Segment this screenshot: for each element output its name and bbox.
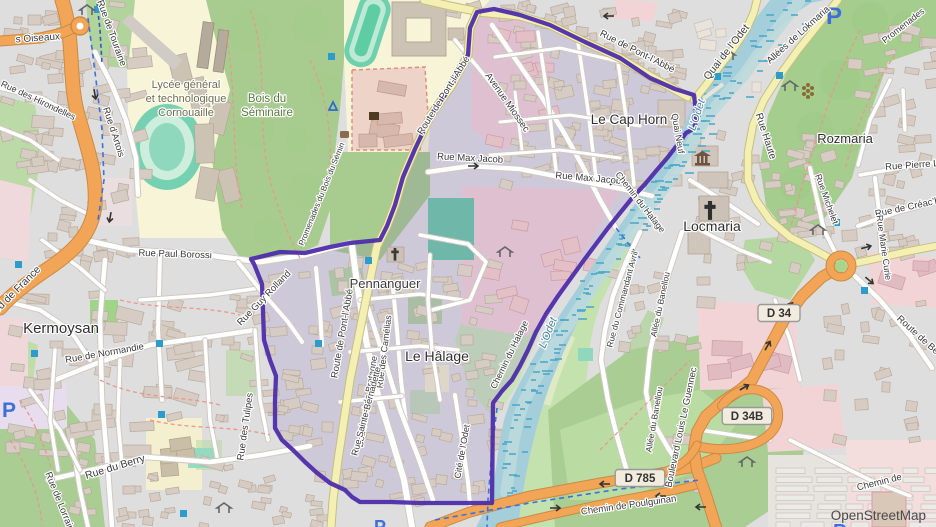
svg-text:P: P: [2, 399, 16, 422]
svg-text:Bois du: Bois du: [248, 93, 286, 105]
svg-text:D 34: D 34: [767, 308, 792, 320]
svg-text:Le Hâlage: Le Hâlage: [405, 348, 469, 364]
svg-text:Lycée général: Lycée général: [152, 79, 221, 91]
svg-text:Pennanguer: Pennanguer: [350, 276, 422, 291]
svg-text:Cornouaille: Cornouaille: [158, 107, 214, 119]
svg-text:Le Cap Horn: Le Cap Horn: [591, 112, 668, 127]
svg-text:Rozmaria: Rozmaria: [817, 131, 873, 146]
svg-text:P: P: [374, 517, 386, 527]
svg-text:P: P: [826, 3, 842, 30]
svg-text:D 785: D 785: [625, 473, 656, 485]
svg-text:D 34B: D 34B: [731, 411, 764, 423]
svg-text:Séminaire: Séminaire: [241, 107, 293, 119]
svg-text:OpenStreetMap: OpenStreetMap: [831, 508, 926, 523]
svg-text:Kermoysan: Kermoysan: [23, 320, 99, 337]
svg-text:Locmaria: Locmaria: [683, 218, 741, 234]
svg-text:et technologique: et technologique: [146, 93, 227, 105]
